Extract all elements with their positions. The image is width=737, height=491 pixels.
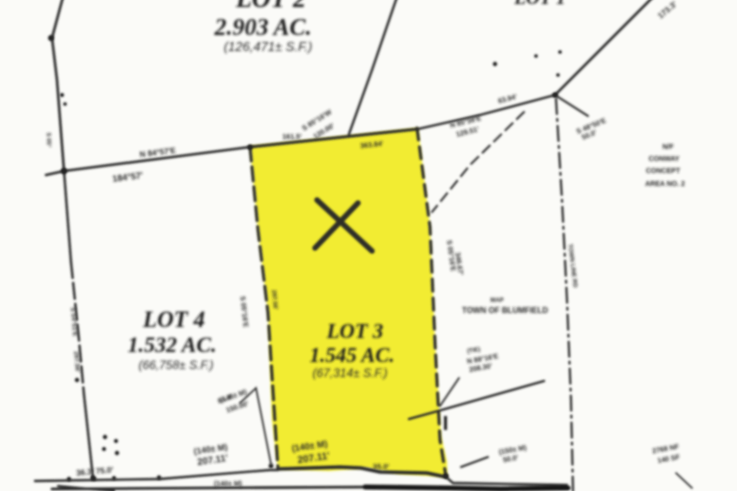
svg-text:CONWAY: CONWAY — [649, 156, 680, 163]
svg-text:(140± M): (140± M) — [214, 481, 242, 488]
svg-text:1.545 AC.: 1.545 AC. — [310, 343, 395, 367]
svg-text:CONCEPT: CONCEPT — [646, 168, 681, 175]
svg-text:LOT 2: LOT 2 — [235, 0, 306, 13]
svg-text:(66,758± S.F.): (66,758± S.F.) — [138, 358, 213, 372]
svg-text:161.5': 161.5' — [282, 134, 302, 141]
svg-text:1.532 AC.: 1.532 AC. — [127, 332, 216, 357]
svg-text:TOWN OF BLUMFIELD: TOWN OF BLUMFIELD — [462, 306, 548, 315]
svg-text:AREA NO. 2: AREA NO. 2 — [645, 181, 685, 188]
svg-text:S 05°: S 05° — [45, 132, 52, 148]
svg-text:(67,314± S.F.): (67,314± S.F.) — [312, 366, 387, 380]
svg-text:35.0': 35.0' — [373, 462, 390, 471]
svg-text:MAP: MAP — [490, 298, 503, 304]
svg-text:2.903 AC.: 2.903 AC. — [213, 15, 311, 41]
svg-text:(126,471± S.F.): (126,471± S.F.) — [224, 39, 313, 54]
svg-text:LOT 3: LOT 3 — [326, 319, 384, 343]
svg-text:LOT 4: LOT 4 — [142, 307, 205, 332]
svg-text:N/F: N/F — [662, 144, 674, 151]
svg-text:LOT 1: LOT 1 — [513, 0, 565, 9]
